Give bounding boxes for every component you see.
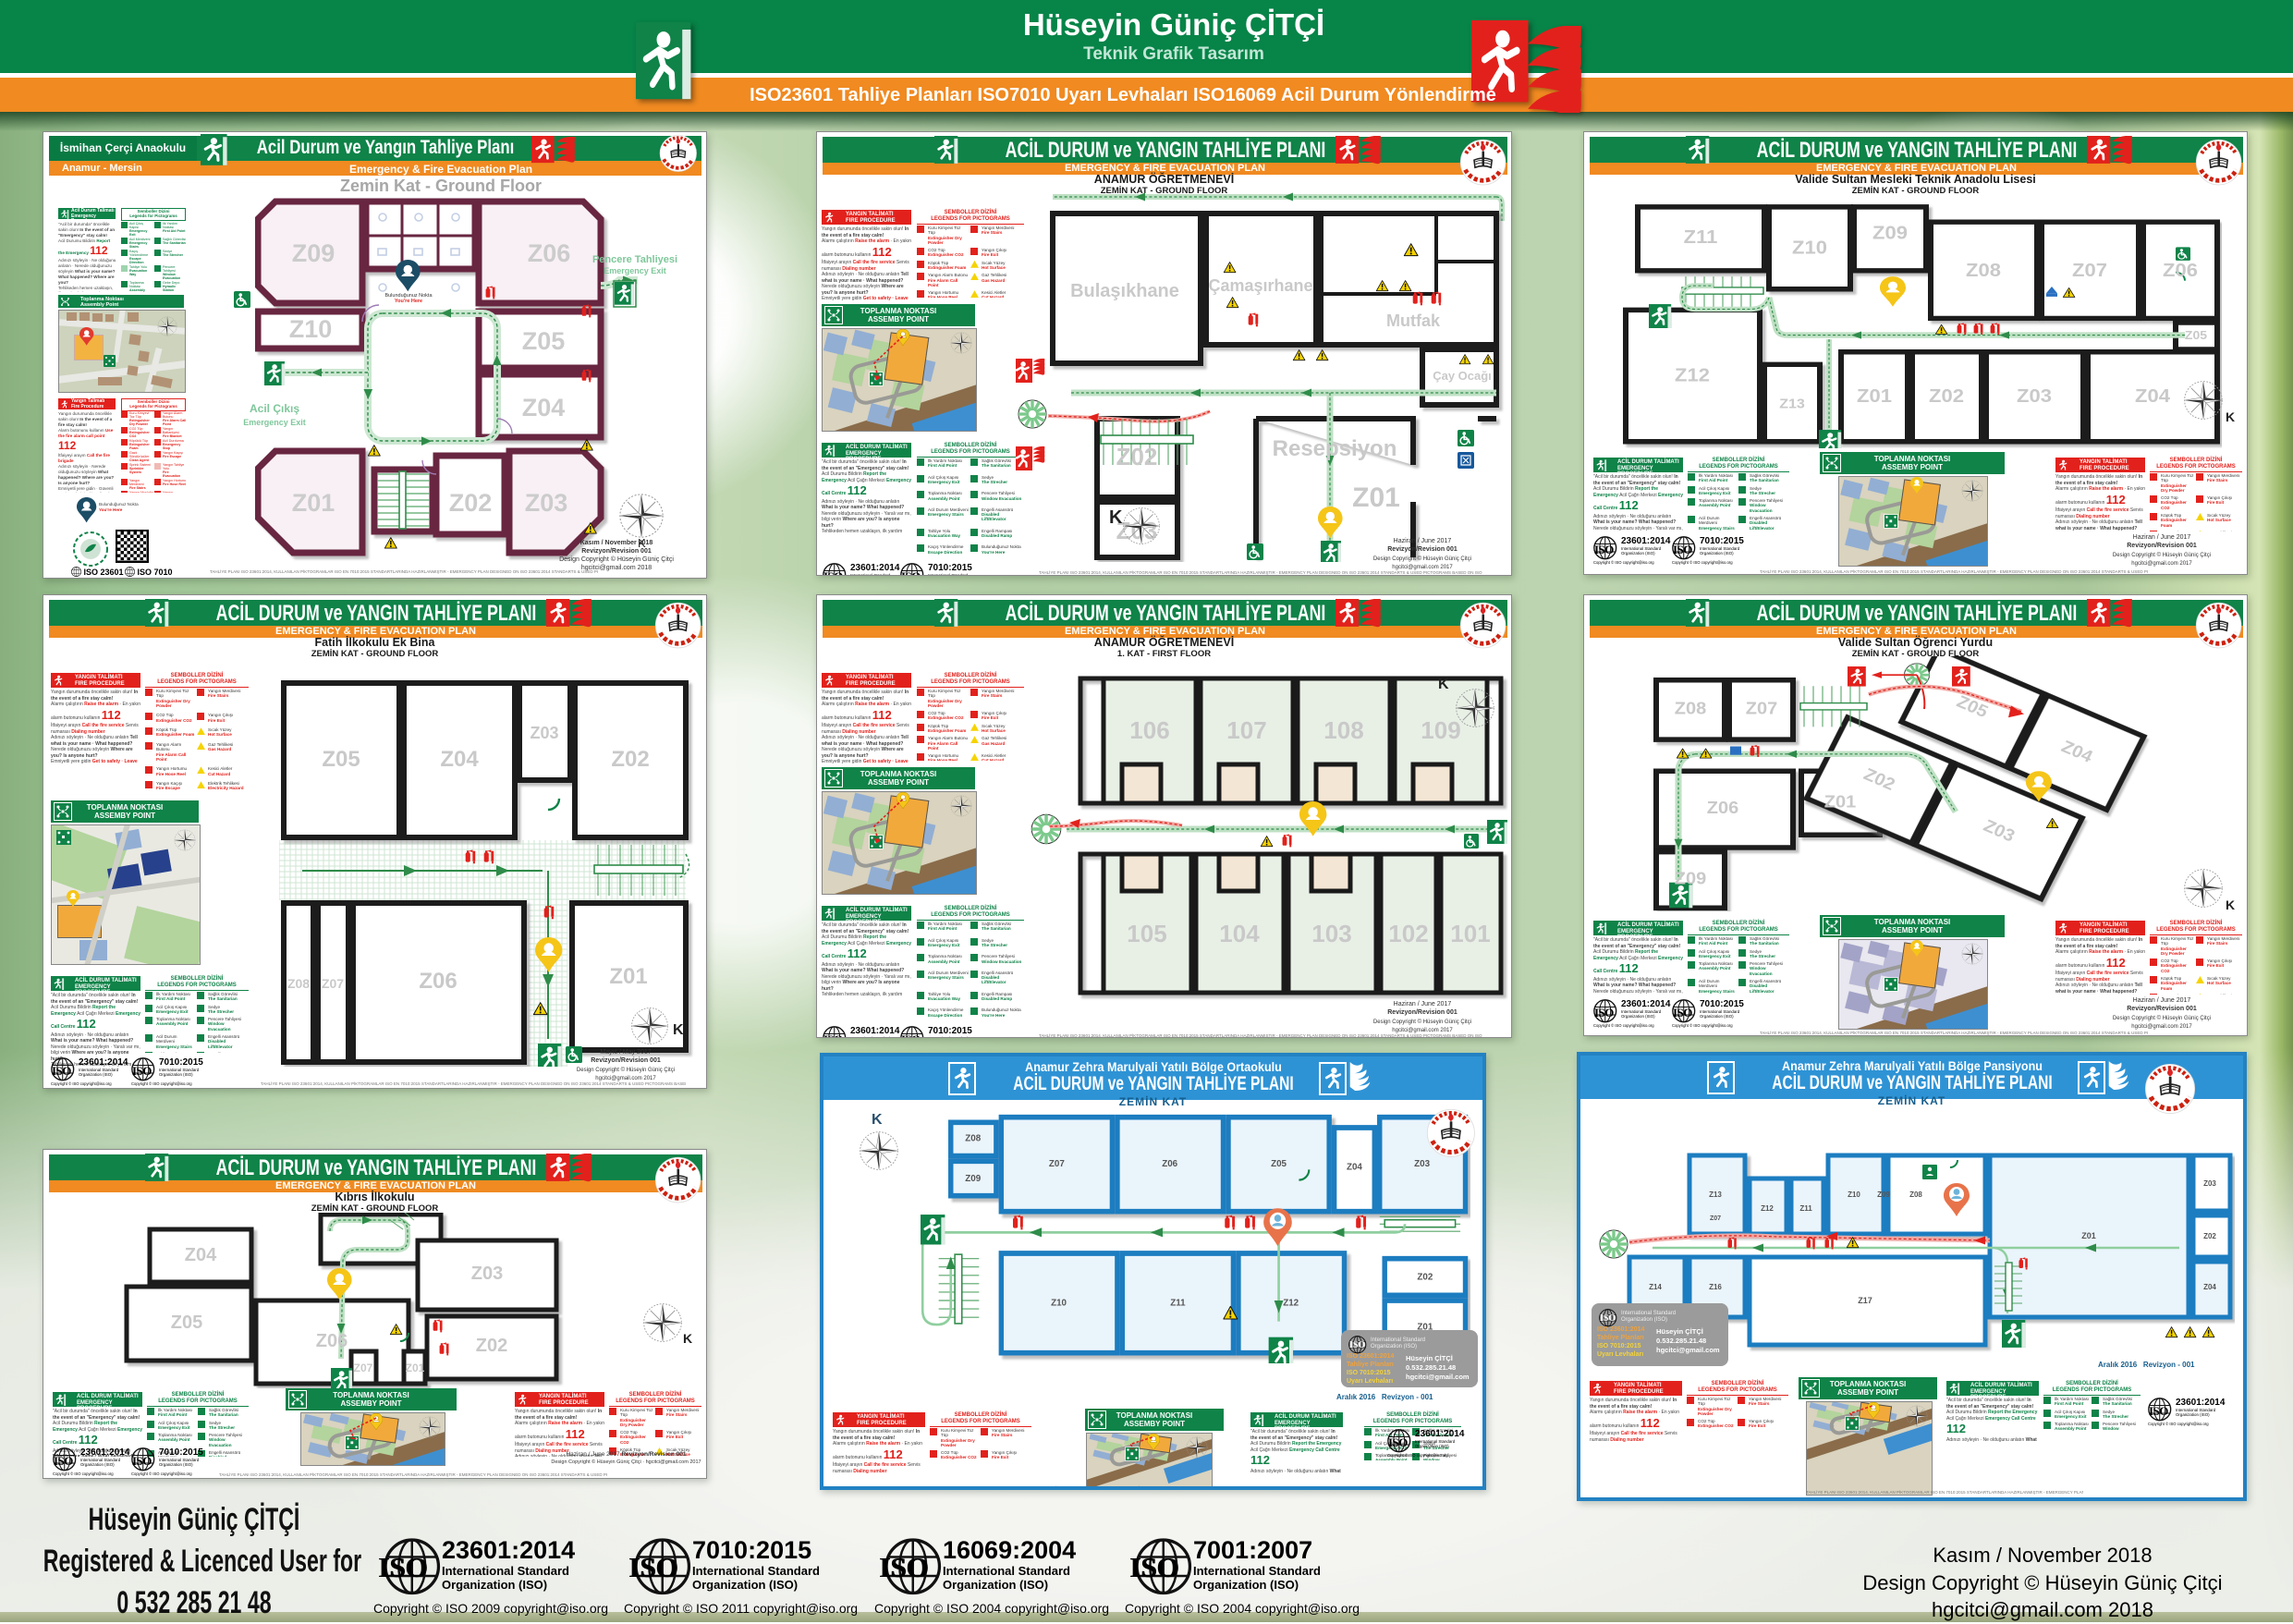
svg-text:Z17: Z17: [1858, 1296, 1872, 1305]
svg-text:Z07: Z07: [1746, 700, 1777, 718]
svg-text:108: 108: [1323, 716, 1363, 744]
svg-text:Z10: Z10: [1848, 1191, 1860, 1199]
svg-text:102: 102: [1388, 920, 1428, 947]
svg-text:Z05: Z05: [322, 747, 360, 772]
svg-text:Z10: Z10: [1051, 1299, 1067, 1309]
svg-text:Z11: Z11: [1799, 1204, 1812, 1213]
svg-text:103: 103: [1311, 920, 1351, 947]
svg-text:Z01: Z01: [1352, 482, 1400, 513]
svg-text:Z05: Z05: [1271, 1159, 1287, 1169]
svg-text:Z02: Z02: [1116, 443, 1158, 470]
svg-text:105: 105: [1127, 920, 1166, 947]
svg-text:Z03: Z03: [471, 1264, 503, 1284]
svg-text:Z04: Z04: [185, 1245, 217, 1265]
svg-text:Z04: Z04: [1347, 1162, 1362, 1172]
svg-text:Z10: Z10: [1792, 238, 1827, 259]
svg-text:Z03: Z03: [1414, 1159, 1430, 1169]
svg-text:Z04: Z04: [522, 394, 566, 421]
svg-text:Z04: Z04: [2135, 386, 2170, 407]
svg-text:Z03: Z03: [530, 724, 558, 742]
svg-text:Z07: Z07: [1049, 1159, 1065, 1169]
svg-text:Z06: Z06: [1707, 800, 1738, 818]
svg-text:Z07: Z07: [1710, 1215, 1721, 1222]
svg-text:Z08: Z08: [965, 1134, 981, 1144]
svg-text:Z03: Z03: [2017, 386, 2052, 407]
svg-text:Mutfak: Mutfak: [1386, 311, 1441, 330]
svg-text:Z06: Z06: [1162, 1159, 1177, 1169]
svg-text:Z08: Z08: [1675, 700, 1707, 718]
svg-text:Z12: Z12: [1283, 1299, 1299, 1309]
svg-text:Z06: Z06: [316, 1331, 348, 1351]
svg-text:Z01: Z01: [1824, 793, 1857, 812]
svg-text:106: 106: [1129, 716, 1169, 744]
svg-text:Bulaşıkhane: Bulaşıkhane: [1070, 281, 1179, 301]
svg-text:K: K: [673, 1022, 684, 1038]
svg-text:Çamaşırhane: Çamaşırhane: [1208, 276, 1312, 295]
svg-text:Z03: Z03: [2203, 1179, 2216, 1188]
svg-text:Z13: Z13: [1779, 397, 1805, 411]
svg-text:Çay Ocağı: Çay Ocağı: [1433, 369, 1492, 383]
svg-text:Z02: Z02: [2203, 1232, 2216, 1240]
svg-text:Z07: Z07: [354, 1361, 373, 1374]
svg-text:Z04: Z04: [440, 747, 479, 772]
svg-text:Z01: Z01: [609, 964, 647, 989]
svg-text:Z02: Z02: [611, 747, 649, 772]
svg-text:Z01: Z01: [2081, 1231, 2096, 1240]
svg-text:Z08: Z08: [287, 976, 310, 991]
svg-text:Z03: Z03: [525, 489, 568, 517]
svg-text:107: 107: [1226, 716, 1266, 744]
svg-text:Z02: Z02: [476, 1336, 507, 1356]
svg-text:Z09: Z09: [1675, 870, 1706, 888]
svg-text:Z09: Z09: [965, 1174, 981, 1184]
svg-text:Z11: Z11: [1684, 227, 1718, 248]
svg-text:Z08: Z08: [1909, 1191, 1922, 1199]
svg-text:Z09: Z09: [1877, 1191, 1890, 1199]
svg-text:Z04: Z04: [2203, 1283, 2216, 1291]
svg-text:Z12: Z12: [1675, 365, 1710, 385]
svg-text:Z01: Z01: [292, 489, 335, 517]
svg-text:104: 104: [1219, 920, 1260, 947]
svg-text:K: K: [1109, 507, 1123, 528]
svg-text:You're Here: You're Here: [395, 299, 422, 304]
svg-text:Z08: Z08: [1966, 261, 2001, 281]
svg-text:Z07: Z07: [322, 976, 344, 991]
svg-text:Z09: Z09: [292, 239, 335, 267]
svg-text:Z05: Z05: [522, 327, 566, 355]
svg-text:Z10: Z10: [289, 315, 333, 343]
svg-text:Z09: Z09: [1872, 223, 1908, 243]
svg-text:Z06: Z06: [419, 969, 457, 994]
svg-text:Z02: Z02: [1417, 1272, 1433, 1282]
svg-text:Z01: Z01: [1857, 386, 1892, 407]
svg-text:Z05: Z05: [2185, 329, 2208, 342]
svg-text:Z13: Z13: [1709, 1191, 1722, 1199]
svg-text:Z05: Z05: [171, 1313, 202, 1333]
svg-text:101: 101: [1450, 920, 1490, 947]
svg-text:Z07: Z07: [2072, 261, 2107, 281]
svg-text:Z02: Z02: [1929, 386, 1964, 407]
svg-text:Z14: Z14: [1649, 1283, 1662, 1291]
svg-text:Resepsiyon: Resepsiyon: [1273, 436, 1397, 461]
svg-text:Z02: Z02: [449, 489, 493, 517]
svg-text:Z11: Z11: [1170, 1299, 1186, 1309]
svg-text:Z01: Z01: [406, 1361, 425, 1374]
svg-text:Z06: Z06: [528, 239, 571, 267]
svg-text:Z16: Z16: [1709, 1283, 1722, 1291]
svg-text:Z12: Z12: [1761, 1204, 1774, 1213]
svg-text:Z06: Z06: [2163, 261, 2198, 281]
